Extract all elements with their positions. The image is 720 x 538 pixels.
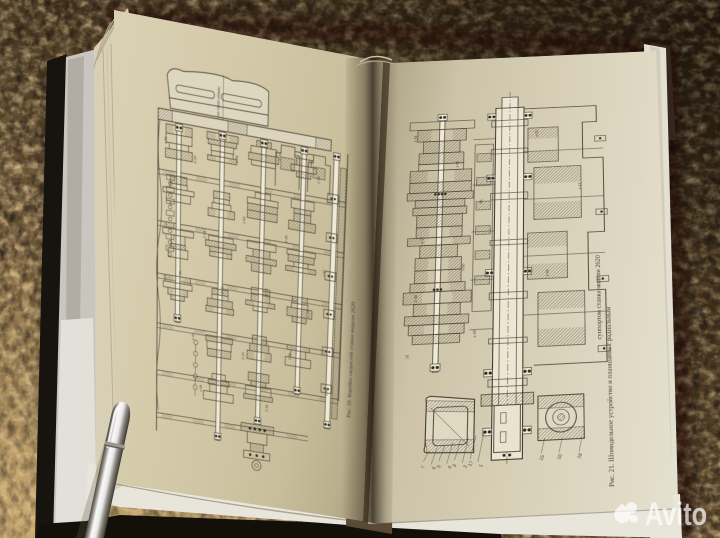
svg-text:Avito: Avito (645, 496, 707, 532)
